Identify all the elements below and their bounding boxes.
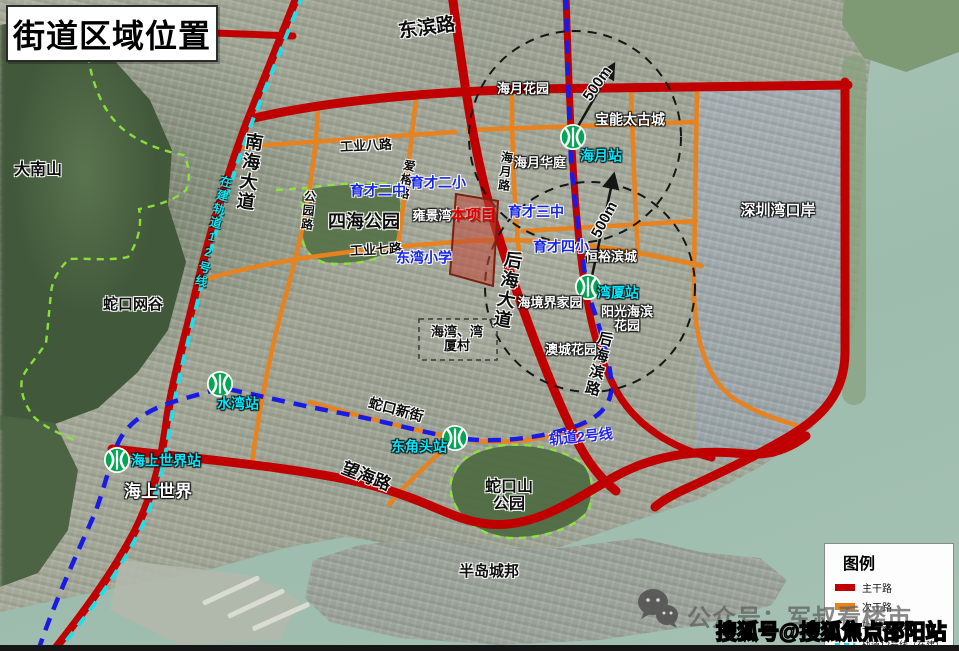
label-houhai-avenue: 后海大道: [491, 249, 523, 331]
label-haiyue-garden: 海月花园: [497, 82, 549, 96]
label-sihai-park: 四海公园: [328, 212, 400, 231]
label-baoneng-taikoo-city: 宝能太古城: [595, 112, 665, 127]
label-haijingjie-jiayuan: 海境界家园: [517, 296, 582, 310]
label-shekou-new-street: 蛇口新街: [367, 395, 425, 424]
label-yucai-2-primary-school: 育才二小: [410, 175, 466, 190]
label-sea-world-station: 海上世界站: [131, 453, 201, 468]
label-houhaibin-road: 后海滨路: [582, 329, 613, 399]
map-title-box: 街道区域位置: [6, 5, 218, 62]
district-location-map: 东滨路南海大道后海大道后海滨路望海路蛇口新街工业八路工业七路公园路爱榕路海月路大…: [0, 0, 959, 651]
label-haiyue-huating: 海月华庭: [514, 156, 566, 170]
label-haiyue-station: 海月站: [580, 148, 622, 163]
label-yucai-4-primary-school: 育才四小: [533, 239, 589, 254]
label-danan-mountain: 大南山: [14, 161, 62, 178]
label-nanhai-avenue: 南海大道: [235, 131, 264, 213]
label-shekoushan-park: 蛇口山 公园: [485, 479, 533, 514]
label-sea-world: 海上世界: [124, 483, 192, 501]
label-haiwan-wanxia-village: 海湾、湾 厦村: [431, 325, 483, 353]
label-gongye-8-road: 工业八路: [340, 138, 393, 155]
label-yangguang-haibin-garden: 阳光海滨 花园: [601, 305, 653, 333]
label-gongyuan-road: 公园路: [300, 189, 316, 232]
label-shekou-net-valley: 蛇口网谷: [103, 297, 163, 313]
legend-title: 图例: [843, 550, 947, 574]
label-radius-500m-south: 500m: [589, 199, 621, 240]
label-bandao-chengbang: 半岛城邦: [459, 564, 519, 580]
label-dongwan-primary-school: 东湾小学: [396, 250, 452, 265]
label-metro-line-12-under-construction: 在建轨道12号线: [193, 174, 233, 289]
label-wanxia-station: 湾厦站: [597, 285, 639, 300]
label-hengyu-bincheng: 恒裕滨城: [585, 250, 637, 264]
legend-item-main-road: 主干路: [835, 578, 947, 597]
label-airong-road: 爱榕路: [396, 158, 416, 202]
label-dongbin-road: 东滨路: [397, 15, 456, 43]
label-yucai-2-middle-school: 育才二中: [350, 183, 406, 198]
label-shenzhen-bay-port: 深圳湾口岸: [740, 203, 815, 219]
label-aocheng-garden: 澳城花园: [545, 343, 597, 357]
bottom-black-bar: [0, 645, 959, 651]
map-labels: 东滨路南海大道后海大道后海滨路望海路蛇口新街工业八路工业七路公园路爱榕路海月路大…: [0, 0, 959, 651]
legend-swatch-main-road: [835, 584, 855, 591]
label-yucai-3-middle-school: 育才三中: [508, 204, 564, 219]
label-radius-500m-north: 500m: [580, 64, 615, 105]
wechat-icon: [636, 588, 680, 635]
label-haiyue-road: 海月路: [497, 150, 513, 193]
label-project-site: 本项目: [450, 208, 495, 224]
watermark-sohu-account: 搜狐号@搜狐焦点邵阳站: [716, 616, 946, 646]
label-wanghai-road: 望海路: [339, 459, 393, 494]
label-dongjiaotou-station: 东角头站: [391, 439, 447, 454]
label-metro-line-2: 轨道2号线: [548, 426, 613, 448]
label-shuiwan-station: 水湾站: [217, 396, 259, 411]
label-gongye-7-road: 工业七路: [350, 242, 403, 259]
page-title: 街道区域位置: [13, 11, 211, 57]
legend-label-main-road: 主干路: [862, 580, 892, 595]
label-yongjingwan: 雍景湾: [412, 209, 451, 223]
